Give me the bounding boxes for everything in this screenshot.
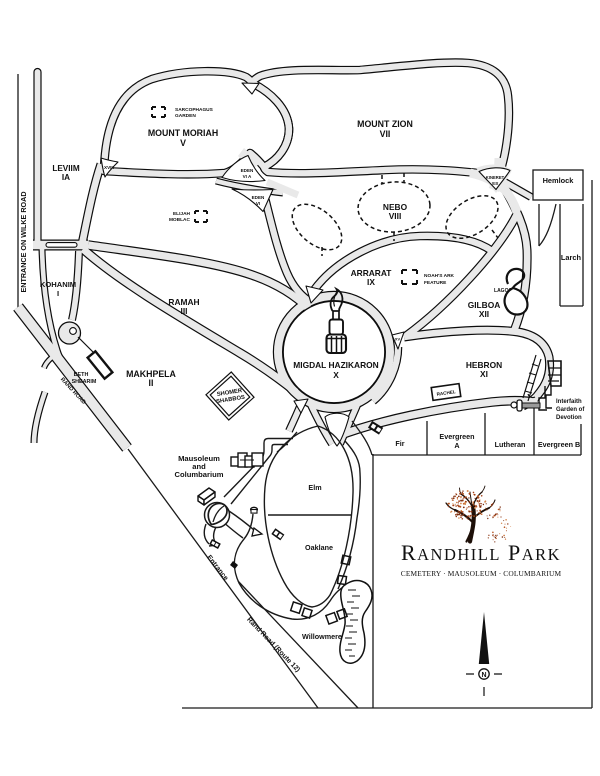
svg-text:Oaklane: Oaklane (305, 543, 333, 552)
svg-text:ELIJAH: ELIJAH (173, 211, 191, 217)
svg-text:Evergreen B: Evergreen B (538, 440, 580, 449)
svg-text:BETH: BETH (74, 372, 89, 378)
svg-text:EDEN: EDEN (252, 195, 265, 200)
svg-text:Devotion: Devotion (556, 415, 582, 421)
svg-text:Garden of: Garden of (556, 407, 585, 413)
svg-text:Willowmere: Willowmere (302, 632, 342, 641)
svg-text:N: N (481, 672, 486, 679)
svg-text:A: A (454, 441, 459, 450)
svg-text:ENTRANCE ON WILKE ROAD: ENTRANCE ON WILKE ROAD (19, 191, 28, 292)
svg-text:I: I (57, 289, 59, 298)
svg-text:Elm: Elm (308, 483, 321, 492)
svg-text:Lutheran: Lutheran (495, 440, 526, 449)
svg-text:KINERET: KINERET (486, 175, 505, 180)
svg-text:XV: XV (395, 337, 401, 342)
svg-text:CEMETERY · MAUSOLEUM · COLUMBA: CEMETERY · MAUSOLEUM · COLUMBARIUM (401, 569, 562, 578)
svg-text:NOAH'S ARK: NOAH'S ARK (424, 273, 455, 279)
svg-text:Interfaith: Interfaith (556, 399, 582, 405)
svg-text:MOUNT MORIAH: MOUNT MORIAH (148, 128, 218, 138)
svg-text:MOUNT ZION: MOUNT ZION (357, 119, 413, 129)
svg-text:MIGDAL HAZIKARON: MIGDAL HAZIKARON (293, 360, 378, 370)
svg-text:LEVIIM: LEVIIM (52, 164, 79, 173)
svg-text:Evergreen: Evergreen (439, 432, 474, 441)
svg-text:Columbarium: Columbarium (175, 470, 224, 479)
svg-text:IX: IX (367, 277, 375, 287)
svg-text:V: V (180, 138, 186, 148)
svg-text:Fir: Fir (395, 439, 404, 448)
svg-text:Hemlock: Hemlock (543, 176, 575, 185)
svg-text:X: X (333, 370, 339, 380)
svg-text:IA: IA (62, 173, 70, 182)
svg-text:XIX: XIX (492, 181, 499, 186)
svg-text:EDEN: EDEN (241, 168, 254, 173)
svg-text:II: II (149, 378, 154, 388)
svg-text:XI: XI (480, 369, 488, 379)
svg-text:III: III (181, 306, 188, 316)
svg-text:VII: VII (380, 129, 391, 139)
svg-text:XVIII: XVIII (104, 165, 114, 170)
svg-text:XII: XII (479, 309, 489, 319)
svg-text:Larch: Larch (561, 253, 582, 262)
svg-text:SARCOPHAGUS: SARCOPHAGUS (175, 107, 214, 113)
svg-text:MOBLAC: MOBLAC (169, 217, 191, 223)
svg-text:VI A: VI A (243, 174, 252, 179)
svg-text:VIII: VIII (389, 211, 402, 221)
svg-text:KOHANIM: KOHANIM (40, 280, 76, 289)
svg-text:SHEARIM: SHEARIM (72, 379, 97, 385)
svg-text:GARDEN: GARDEN (175, 113, 196, 119)
svg-text:FEATURE: FEATURE (424, 280, 447, 286)
svg-text:VI: VI (256, 201, 260, 206)
